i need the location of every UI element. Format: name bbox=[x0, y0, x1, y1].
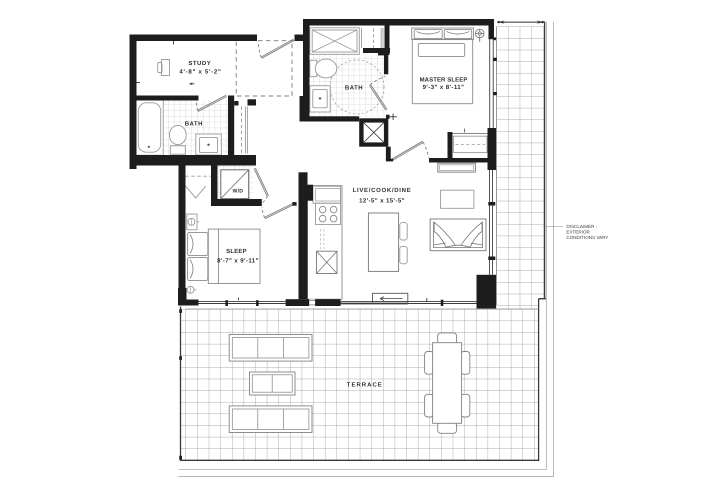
svg-text:W/D: W/D bbox=[233, 189, 244, 195]
svg-text:12'-5" x 15'-5": 12'-5" x 15'-5" bbox=[359, 197, 405, 204]
svg-text:BATH: BATH bbox=[345, 84, 363, 91]
svg-text:STUDY: STUDY bbox=[188, 60, 211, 67]
svg-text:8'-7" x 9'-11": 8'-7" x 9'-11" bbox=[217, 257, 259, 264]
svg-text:DISCLAIMER :: DISCLAIMER : bbox=[566, 224, 597, 229]
svg-text:CONDITIONS VARY: CONDITIONS VARY bbox=[566, 235, 608, 240]
svg-text:EXTERIOR: EXTERIOR bbox=[566, 230, 590, 235]
svg-text:BATH: BATH bbox=[185, 120, 203, 127]
svg-text:TERRACE: TERRACE bbox=[347, 382, 383, 389]
svg-text:9'-3" x 8'-11": 9'-3" x 8'-11" bbox=[423, 84, 465, 91]
svg-text:SLEEP: SLEEP bbox=[226, 248, 247, 255]
svg-text:LIVE/COOK/DINE: LIVE/COOK/DINE bbox=[353, 187, 412, 194]
svg-text:MASTER SLEEP: MASTER SLEEP bbox=[420, 76, 468, 83]
svg-text:4'-8" x 5'-2": 4'-8" x 5'-2" bbox=[179, 69, 221, 76]
